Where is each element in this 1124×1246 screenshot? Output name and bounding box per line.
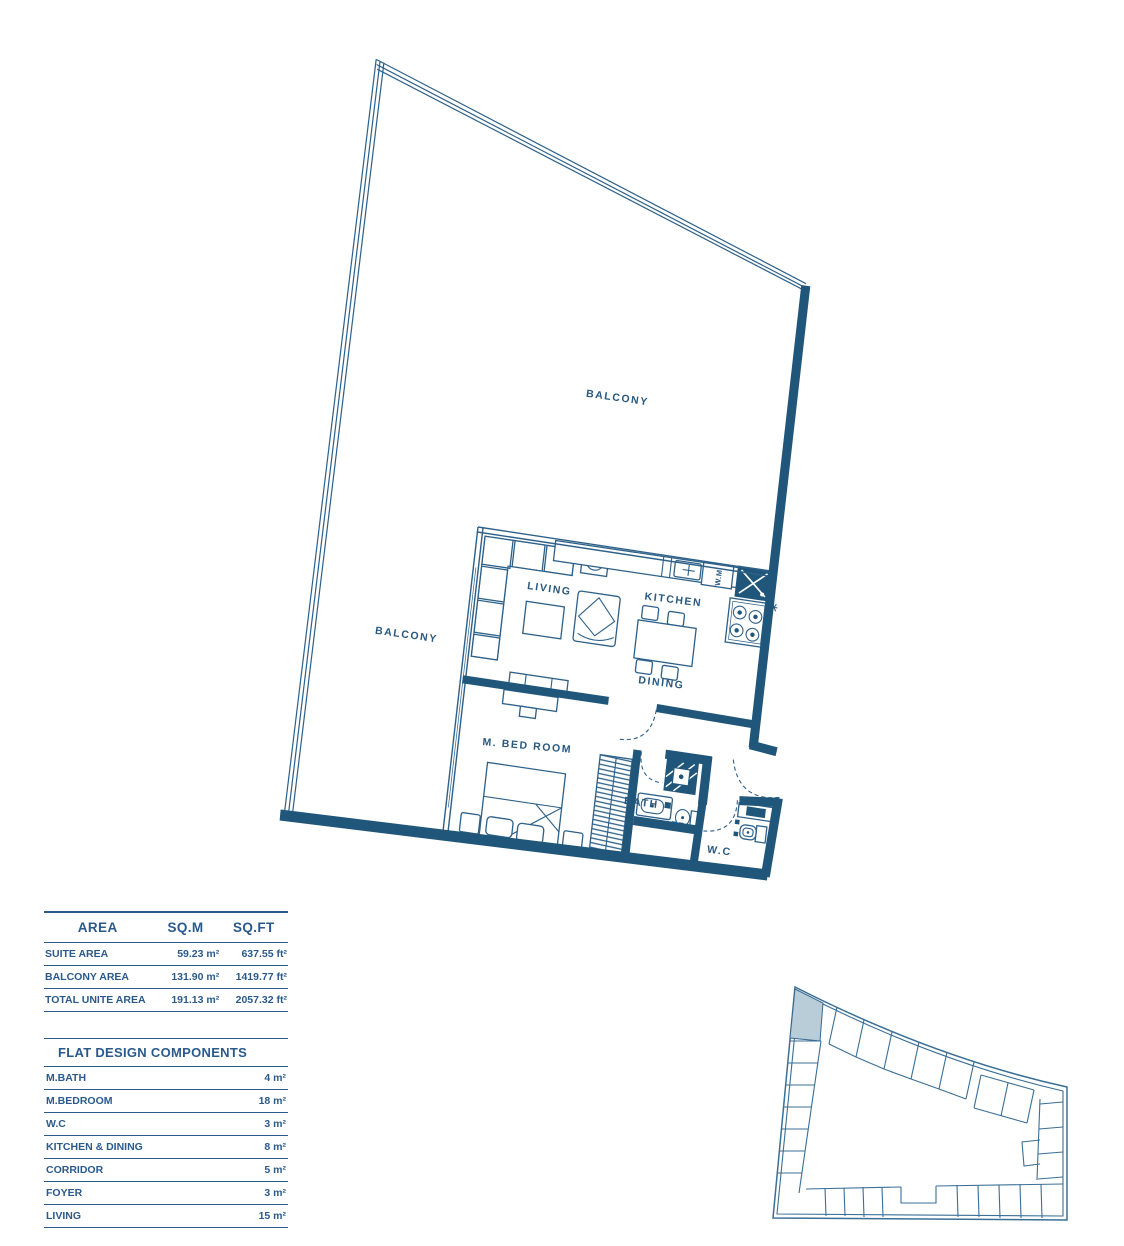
table-row: LIVING 15 m² bbox=[44, 1205, 288, 1228]
coffee-table bbox=[523, 601, 565, 639]
component-value: 8 m² bbox=[264, 1141, 286, 1153]
key-plan-bottom-units bbox=[806, 1184, 1063, 1218]
component-value: 3 m² bbox=[264, 1118, 286, 1130]
door-arc-bedroom bbox=[618, 705, 656, 744]
table-row: CORRIDOR 5 m² bbox=[44, 1159, 288, 1182]
sqm-table-header: SQ.M bbox=[151, 920, 219, 935]
key-plan bbox=[773, 987, 1067, 1220]
component-label: W.C bbox=[46, 1118, 66, 1130]
wc-room bbox=[733, 802, 773, 843]
entrance-jog-wall bbox=[750, 745, 777, 752]
door-arc-bath bbox=[638, 752, 665, 784]
area-row-sqm: 59.23 m² bbox=[151, 948, 219, 960]
component-value: 18 m² bbox=[259, 1095, 286, 1107]
components-table: FLAT DESIGN COMPONENTS M.BATH 4 m² M.BED… bbox=[44, 1038, 288, 1228]
table-row: SUITE AREA 59.23 m² 637.55 ft² bbox=[44, 943, 288, 966]
dining-area bbox=[632, 605, 698, 683]
shower bbox=[663, 758, 699, 795]
table-row: M.BEDROOM 18 m² bbox=[44, 1090, 288, 1113]
component-value: 15 m² bbox=[259, 1210, 286, 1222]
door-arc-entrance bbox=[729, 758, 783, 799]
dining-chair bbox=[641, 605, 658, 620]
area-table-header-row: AREA SQ.M SQ.FT bbox=[44, 911, 288, 943]
area-row-sqft: 637.55 ft² bbox=[219, 948, 287, 960]
dining-table bbox=[634, 620, 696, 667]
component-label: M.BEDROOM bbox=[46, 1095, 113, 1107]
wall-corridor bbox=[656, 708, 758, 725]
door-arc-wc bbox=[703, 796, 737, 835]
lounge-chair bbox=[573, 591, 621, 647]
table-row: W.C 3 m² bbox=[44, 1113, 288, 1136]
component-label: KITCHEN & DINING bbox=[46, 1141, 143, 1153]
area-table: AREA SQ.M SQ.FT SUITE AREA 59.23 m² 637.… bbox=[44, 911, 288, 1012]
component-value: 4 m² bbox=[264, 1072, 286, 1084]
table-row: M.BATH 4 m² bbox=[44, 1067, 288, 1090]
wc-label: W.C bbox=[706, 844, 732, 859]
floorplan-page: BALCONY BALCONY LIVING KITCHEN DINING M.… bbox=[0, 0, 1124, 1246]
wall-bath-bottom bbox=[633, 821, 697, 830]
living-label: LIVING bbox=[526, 580, 572, 598]
balcony-top-label: BALCONY bbox=[585, 388, 649, 409]
area-row-sqm: 191.13 m² bbox=[151, 994, 219, 1006]
component-value: 3 m² bbox=[264, 1187, 286, 1199]
component-label: LIVING bbox=[46, 1210, 81, 1222]
area-row-sqft: 1419.77 ft² bbox=[219, 971, 287, 983]
area-row-label: TOTAL UNITE AREA bbox=[45, 994, 151, 1006]
balcony-left-label: BALCONY bbox=[374, 625, 438, 646]
components-table-title: FLAT DESIGN COMPONENTS bbox=[44, 1038, 288, 1067]
area-row-label: SUITE AREA bbox=[45, 948, 151, 960]
m-bedroom-label: M. BED ROOM bbox=[482, 736, 573, 756]
component-label: CORRIDOR bbox=[46, 1164, 103, 1176]
building-wall-right bbox=[753, 286, 807, 748]
pillow bbox=[485, 816, 513, 838]
area-row-sqft: 2057.32 ft² bbox=[219, 994, 287, 1006]
key-plan-top-units bbox=[829, 1007, 1034, 1123]
table-row: BALCONY AREA 131.90 m² 1419.77 ft² bbox=[44, 966, 288, 989]
wc-toilet bbox=[733, 819, 767, 843]
table-row: KITCHEN & DINING 8 m² bbox=[44, 1136, 288, 1159]
key-plan-right-units bbox=[1022, 1099, 1063, 1180]
dining-chair bbox=[635, 659, 652, 674]
component-label: M.BATH bbox=[46, 1072, 86, 1084]
area-row-label: BALCONY AREA bbox=[45, 971, 151, 983]
bed bbox=[479, 762, 565, 847]
table-row: TOTAL UNITE AREA 191.13 m² 2057.32 ft² bbox=[44, 989, 288, 1012]
master-bedroom bbox=[459, 685, 638, 858]
area-table-header: AREA bbox=[44, 920, 151, 935]
area-row-sqm: 131.90 m² bbox=[151, 971, 219, 983]
sqft-table-header: SQ.FT bbox=[220, 920, 288, 935]
nightstand bbox=[459, 812, 480, 834]
key-plan-highlight-unit bbox=[790, 989, 823, 1041]
wall-bath-foyer bbox=[702, 756, 708, 804]
table-row: FOYER 3 m² bbox=[44, 1182, 288, 1205]
balcony-railing bbox=[284, 59, 825, 886]
component-value: 5 m² bbox=[264, 1164, 286, 1176]
component-label: FOYER bbox=[46, 1187, 82, 1199]
